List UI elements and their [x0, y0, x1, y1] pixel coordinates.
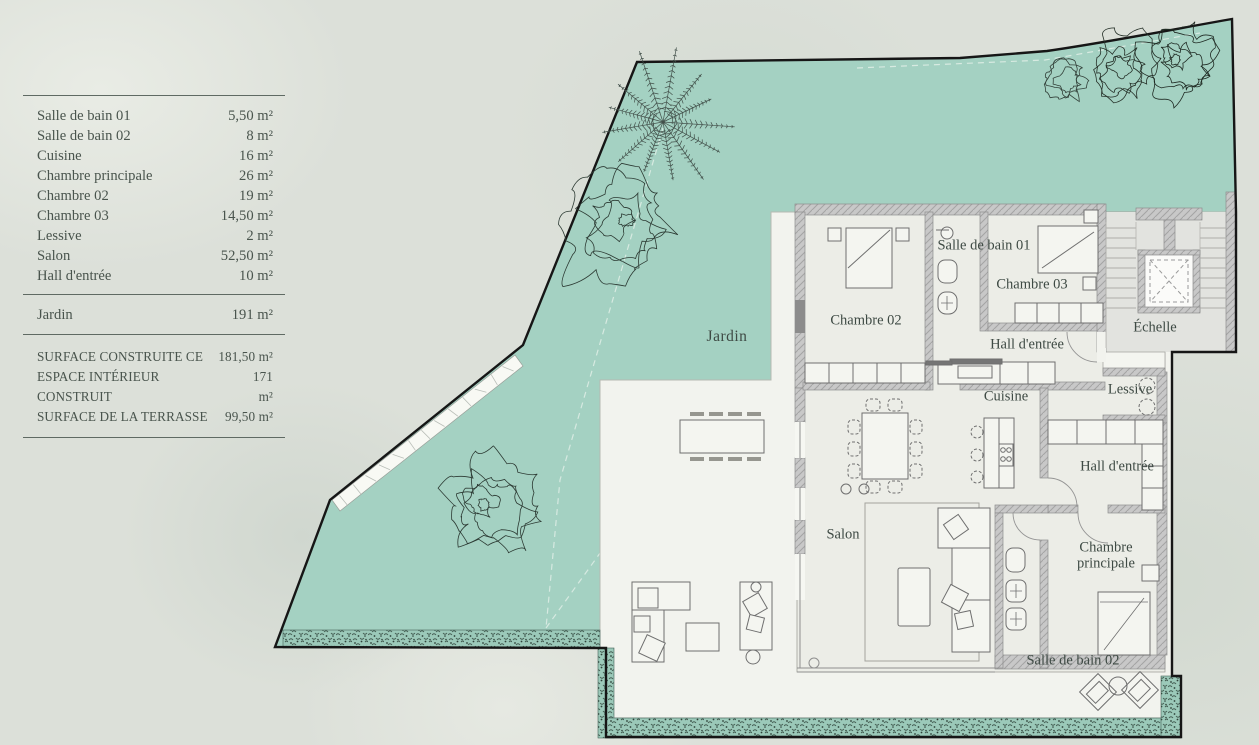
legend-room-label: Salon	[37, 246, 70, 266]
room-label-lessive: Lessive	[1108, 382, 1152, 399]
room-label-salle-de-bain-02: Salle de bain 02	[1026, 653, 1119, 670]
room-label-salon: Salon	[826, 527, 859, 544]
legend-row: Chambre principale26 m²	[37, 166, 273, 186]
legend-row: Jardin191 m²	[37, 305, 273, 325]
legend-room-area: 2 m²	[246, 226, 273, 246]
legend-row: Salon52,50 m²	[37, 246, 273, 266]
legend-room-label: Salle de bain 01	[37, 106, 131, 126]
legend-row: Chambre 0314,50 m²	[37, 206, 273, 226]
legend-garden-label: Jardin	[37, 305, 73, 325]
legend-room-label: Chambre 02	[37, 186, 109, 206]
legend-room-label: Hall d'entrée	[37, 266, 111, 286]
room-label-chambre-principale-line2: principale	[1077, 556, 1135, 573]
room-label-hall-entree-upper: Hall d'entrée	[990, 337, 1064, 354]
legend-room-list: Salle de bain 015,50 m² Salle de bain 02…	[23, 96, 285, 294]
site-plan-page: Salle de bain 015,50 m² Salle de bain 02…	[0, 0, 1259, 745]
legend-summary-area: 171 m²	[236, 367, 273, 407]
bathroom2-fixtures	[1006, 548, 1026, 630]
elevator	[1145, 255, 1193, 307]
legend-room-area: 10 m²	[239, 266, 273, 286]
legend-summary-row: ESPACE INTÉRIEUR CONSTRUIT171 m²	[37, 367, 273, 407]
legend-room-area: 5,50 m²	[228, 106, 273, 126]
legend-room-label: Chambre principale	[37, 166, 153, 186]
legend-room-label: Lessive	[37, 226, 82, 246]
legend-summary-label: ESPACE INTÉRIEUR CONSTRUIT	[37, 367, 236, 407]
legend-divider	[23, 437, 285, 438]
room-label-chambre02: Chambre 02	[830, 313, 901, 330]
legend-room-area: 19 m²	[239, 186, 273, 206]
room-label-chambre-principale-line1: Chambre	[1079, 540, 1132, 557]
legend-row: Chambre 0219 m²	[37, 186, 273, 206]
legend-summary-row: SURFACE CONSTRUITE CE181,50 m²	[37, 347, 273, 367]
legend-room-label: Salle de bain 02	[37, 126, 131, 146]
legend-row: Lessive2 m²	[37, 226, 273, 246]
legend-row: Hall d'entrée10 m²	[37, 266, 273, 286]
room-label-hall-entree-lower: Hall d'entrée	[1080, 459, 1154, 476]
legend-garden-area: 191 m²	[232, 305, 273, 325]
room-label-jardin: Jardin	[707, 328, 748, 346]
entry-door-jamb	[795, 300, 805, 333]
legend-room-area: 16 m²	[239, 146, 273, 166]
legend-summary-row: SURFACE DE LA TERRASSE99,50 m²	[37, 407, 273, 427]
legend-summary-label: SURFACE CONSTRUITE CE	[37, 347, 203, 367]
legend-room-label: Cuisine	[37, 146, 82, 166]
legend-row: Salle de bain 015,50 m²	[37, 106, 273, 126]
legend-room-area: 14,50 m²	[221, 206, 273, 226]
legend-summary-label: SURFACE DE LA TERRASSE	[37, 407, 208, 427]
room-label-cuisine: Cuisine	[984, 389, 1028, 406]
legend-room-label: Chambre 03	[37, 206, 109, 226]
room-label-salle-de-bain-01: Salle de bain 01	[937, 238, 1030, 255]
legend-row: Salle de bain 028 m²	[37, 126, 273, 146]
legend-row: Cuisine16 m²	[37, 146, 273, 166]
room-label-chambre03: Chambre 03	[996, 277, 1067, 294]
legend-room-area: 52,50 m²	[221, 246, 273, 266]
room-label-echelle: Échelle	[1133, 320, 1176, 337]
legend-summary-area: 181,50 m²	[218, 347, 273, 367]
legend-summary-section: SURFACE CONSTRUITE CE181,50 m² ESPACE IN…	[23, 335, 285, 437]
area-legend: Salle de bain 015,50 m² Salle de bain 02…	[23, 95, 285, 438]
legend-garden-section: Jardin191 m²	[23, 295, 285, 334]
legend-room-area: 26 m²	[239, 166, 273, 186]
legend-room-area: 8 m²	[246, 126, 273, 146]
legend-summary-area: 99,50 m²	[225, 407, 273, 427]
